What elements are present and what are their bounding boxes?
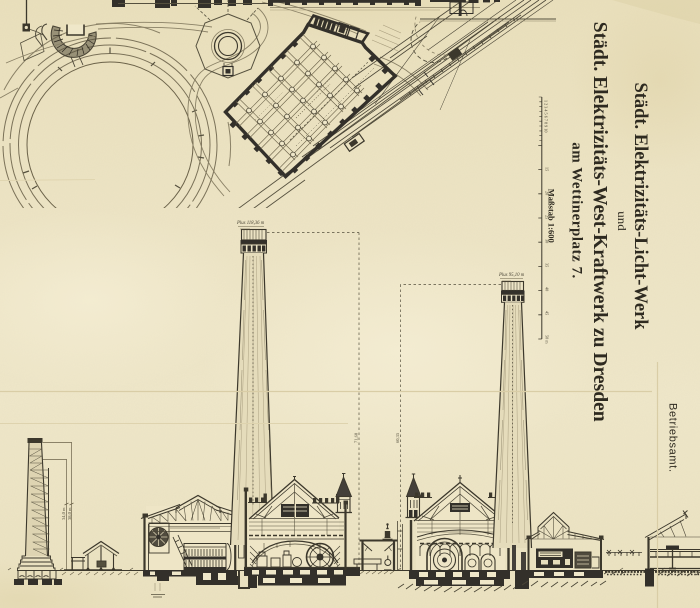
svg-text:Städt. Elektrizitäts-Licht-Wer: Städt. Elektrizitäts-Licht-Werk — [630, 83, 651, 330]
svg-text:Städt. Elektrizitäts-West-Kraf: Städt. Elektrizitäts-West-Kraftwerk zu D… — [589, 22, 610, 422]
svg-text:Plus 95,10 m: Plus 95,10 m — [498, 273, 525, 278]
svg-text:15: 15 — [544, 167, 549, 171]
svg-text:Maßstab 1:600: Maßstab 1:600 — [546, 189, 556, 243]
svg-text:50 m: 50 m — [544, 335, 549, 344]
svg-text:und: und — [615, 211, 629, 230]
svg-text:40: 40 — [544, 287, 549, 291]
svg-text:am Wettinerplatz 7.: am Wettinerplatz 7. — [569, 142, 585, 278]
svg-text:35: 35 — [544, 263, 549, 267]
svg-text:Plus 118,36 m: Plus 118,36 m — [236, 221, 265, 226]
svg-text:Betriebsamt.: Betriebsamt. — [667, 403, 679, 472]
svg-text:45: 45 — [544, 311, 549, 315]
svg-text:1 2 3 4 5 6 7 8 9 10: 1 2 3 4 5 6 7 8 9 10 — [543, 100, 548, 132]
